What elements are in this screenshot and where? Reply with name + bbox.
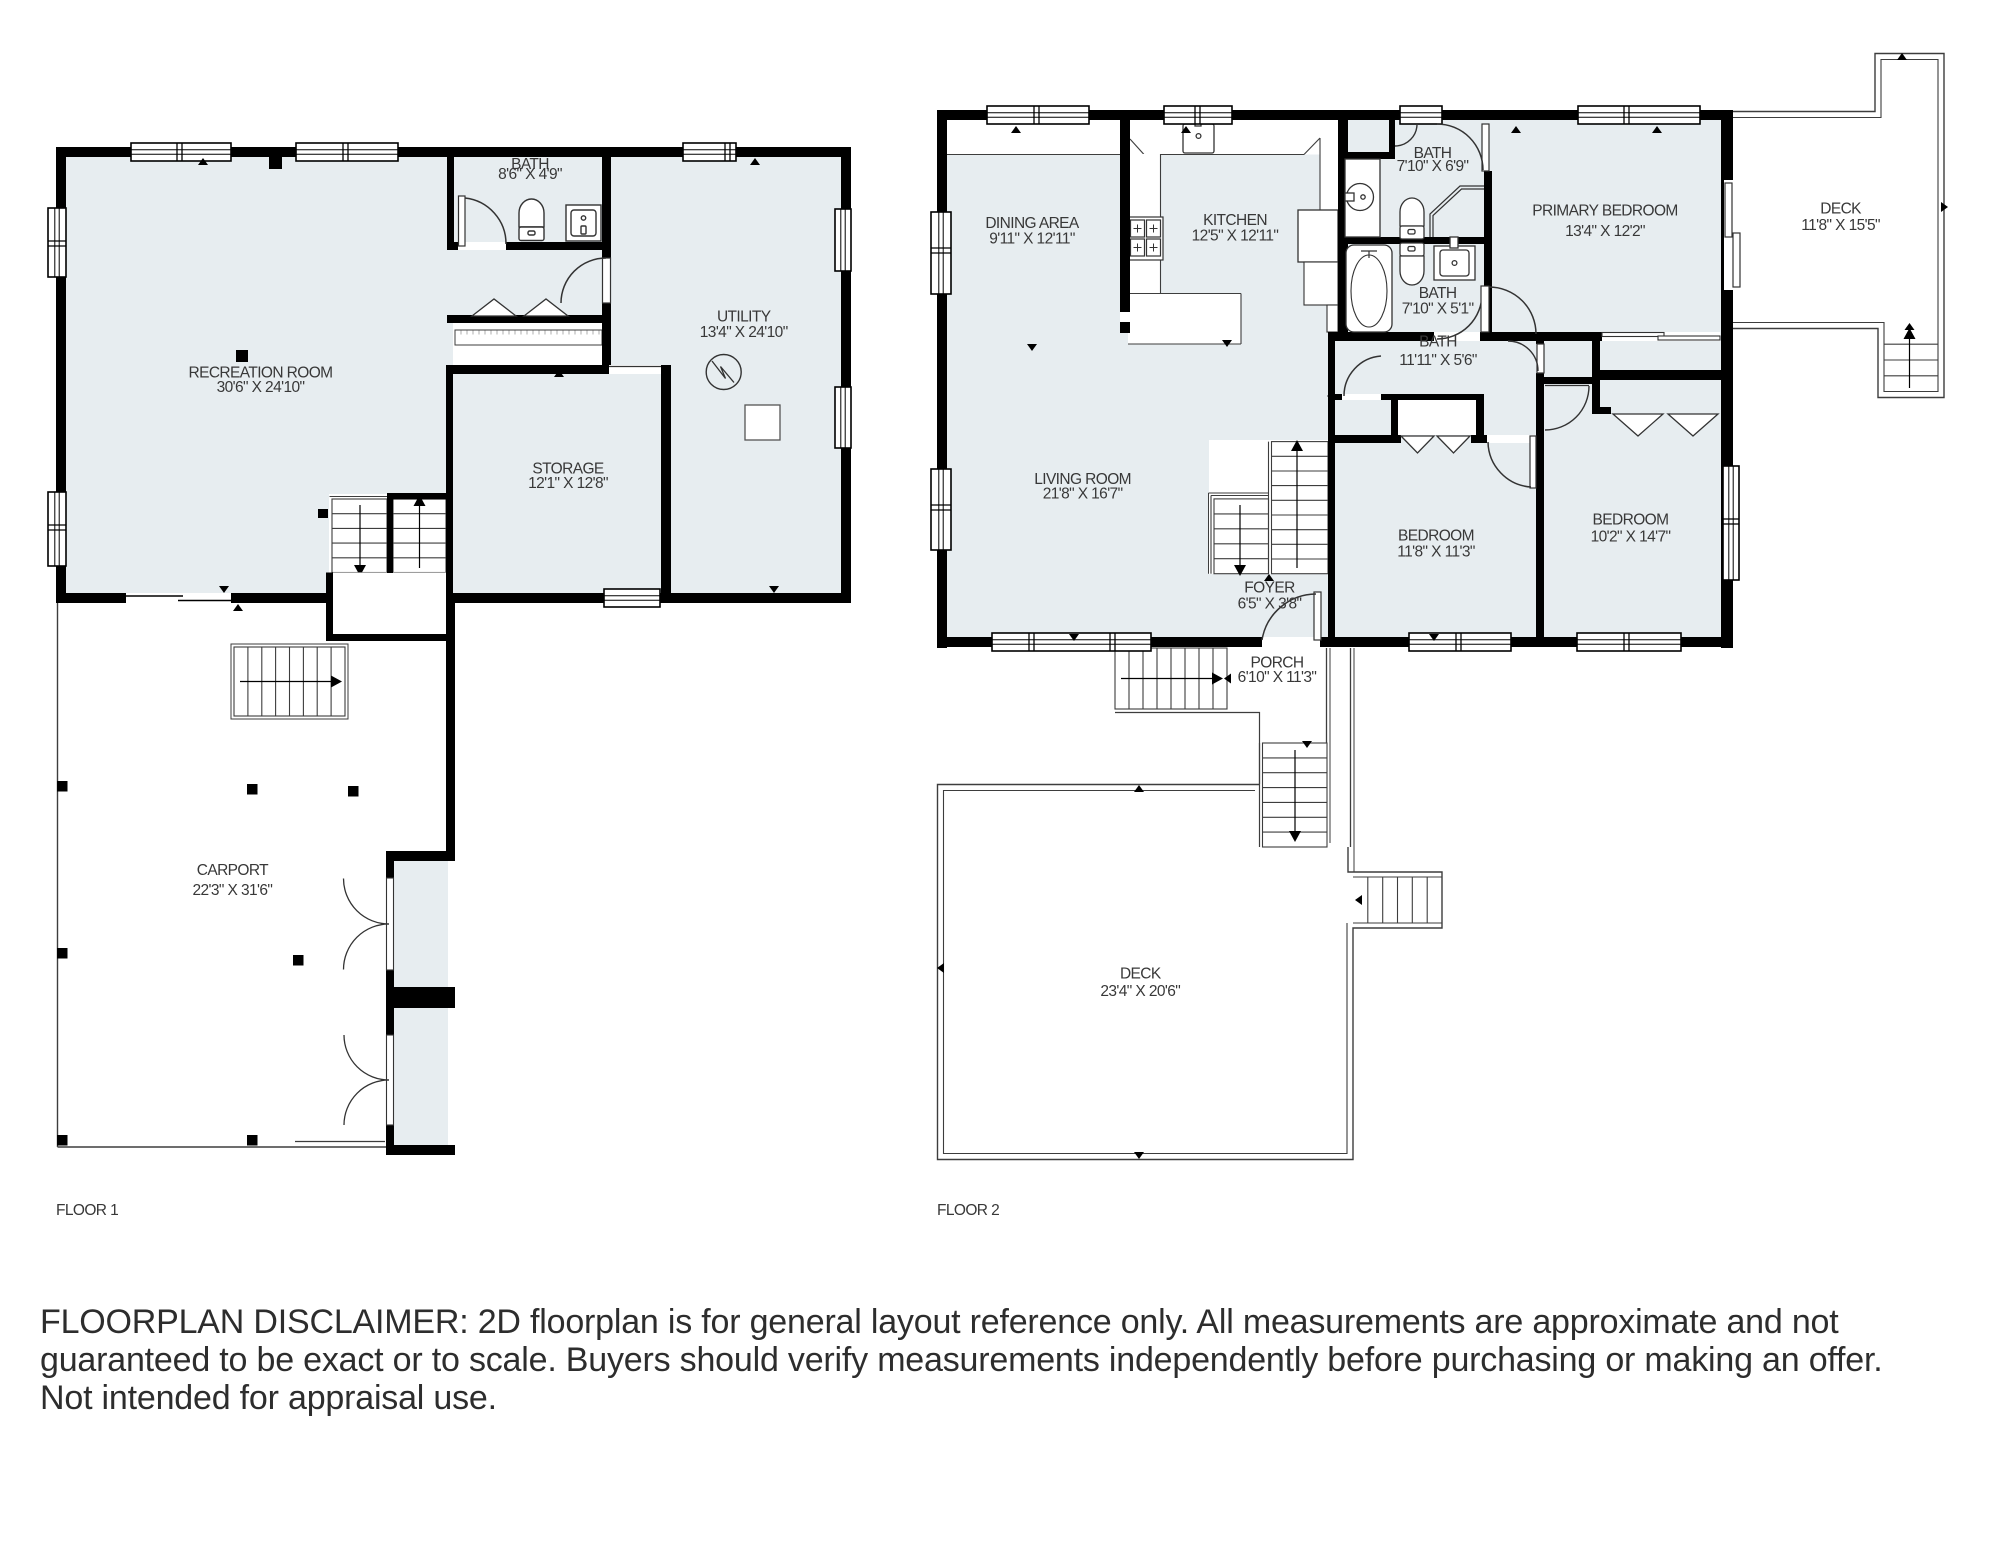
svg-text:11'8" X 11'3": 11'8" X 11'3" xyxy=(1397,544,1475,561)
svg-text:10'2" X 14'7": 10'2" X 14'7" xyxy=(1591,529,1671,546)
svg-text:PRIMARY BEDROOM: PRIMARY BEDROOM xyxy=(1532,203,1677,220)
svg-text:BEDROOM: BEDROOM xyxy=(1593,512,1669,529)
svg-text:6'10" X 11'3": 6'10" X 11'3" xyxy=(1238,669,1317,686)
svg-text:BATH: BATH xyxy=(1419,334,1457,351)
svg-text:12'5" X 12'11": 12'5" X 12'11" xyxy=(1192,228,1279,245)
svg-text:6'5" X 3'8": 6'5" X 3'8" xyxy=(1238,596,1302,613)
svg-text:DINING AREA: DINING AREA xyxy=(985,215,1080,232)
svg-text:UTILITY: UTILITY xyxy=(717,309,771,326)
svg-text:21'8" X 16'7": 21'8" X 16'7" xyxy=(1043,486,1123,503)
svg-text:FLOOR 1: FLOOR 1 xyxy=(56,1202,118,1219)
svg-text:11'8" X 15'5": 11'8" X 15'5" xyxy=(1801,217,1880,234)
svg-text:23'4" X 20'6": 23'4" X 20'6" xyxy=(1100,983,1180,1000)
svg-text:13'4" X 12'2": 13'4" X 12'2" xyxy=(1565,223,1645,240)
svg-text:CARPORT: CARPORT xyxy=(197,862,269,879)
svg-text:FOYER: FOYER xyxy=(1244,580,1295,597)
svg-text:12'1" X 12'8": 12'1" X 12'8" xyxy=(528,475,608,492)
svg-text:7'10" X 5'1": 7'10" X 5'1" xyxy=(1402,301,1474,318)
svg-text:30'6" X 24'10": 30'6" X 24'10" xyxy=(217,379,305,396)
svg-text:BEDROOM: BEDROOM xyxy=(1398,528,1474,545)
svg-text:7'10" X 6'9": 7'10" X 6'9" xyxy=(1397,158,1469,175)
svg-text:BATH: BATH xyxy=(1419,285,1457,302)
svg-text:11'11" X 5'6": 11'11" X 5'6" xyxy=(1399,352,1477,369)
svg-text:22'3" X 31'6": 22'3" X 31'6" xyxy=(193,882,273,899)
svg-text:9'11" X 12'11": 9'11" X 12'11" xyxy=(989,231,1075,248)
svg-text:FLOOR 2: FLOOR 2 xyxy=(937,1202,999,1219)
svg-text:8'6" X 4'9": 8'6" X 4'9" xyxy=(498,166,562,183)
svg-text:DECK: DECK xyxy=(1120,965,1162,982)
svg-text:DECK: DECK xyxy=(1820,201,1862,218)
svg-text:13'4" X 24'10": 13'4" X 24'10" xyxy=(700,324,788,341)
